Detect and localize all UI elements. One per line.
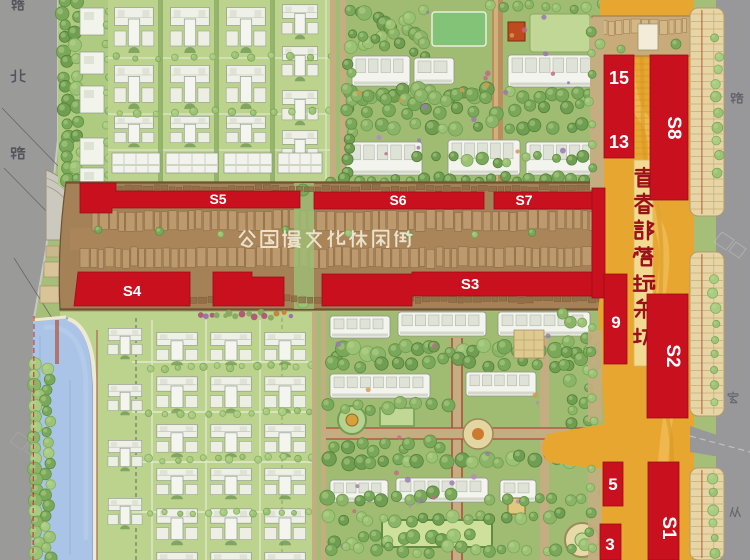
svg-text:S1: S1 (658, 516, 679, 540)
svg-text:9: 9 (611, 313, 620, 332)
svg-text:S4: S4 (123, 283, 142, 300)
svg-text:S5: S5 (209, 191, 226, 207)
svg-text:3: 3 (605, 535, 614, 554)
svg-text:S7: S7 (515, 192, 532, 208)
svg-text:5: 5 (608, 475, 617, 494)
svg-text:S2: S2 (662, 344, 683, 367)
svg-text:15: 15 (609, 68, 629, 88)
svg-text:S8: S8 (663, 116, 684, 139)
svg-text:S6: S6 (389, 192, 406, 208)
svg-text:S3: S3 (461, 276, 479, 293)
svg-text:13: 13 (609, 132, 629, 152)
